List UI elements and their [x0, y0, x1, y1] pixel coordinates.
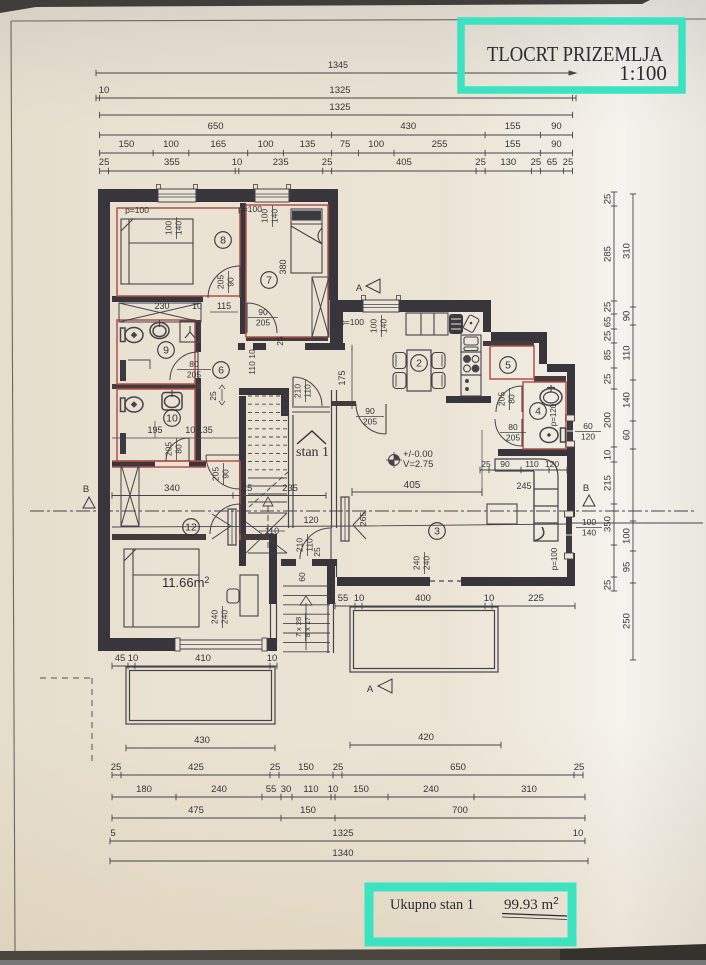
svg-text:1325: 1325 [329, 85, 350, 96]
svg-text:230: 230 [154, 301, 169, 311]
svg-text:30: 30 [281, 784, 292, 795]
svg-text:425: 425 [188, 762, 204, 773]
svg-text:150: 150 [118, 139, 134, 150]
svg-text:10: 10 [99, 85, 110, 96]
svg-text:60: 60 [297, 572, 307, 582]
svg-text:155: 155 [505, 139, 521, 150]
svg-text:240: 240 [210, 610, 220, 624]
svg-text:90: 90 [226, 277, 236, 287]
svg-text:100: 100 [582, 517, 596, 527]
svg-text:9: 9 [163, 345, 169, 357]
svg-text:1340: 1340 [332, 848, 353, 859]
svg-text:7: 7 [266, 275, 272, 287]
svg-text:100: 100 [258, 139, 274, 150]
svg-text:110: 110 [303, 384, 313, 398]
svg-text:p=100: p=100 [550, 547, 559, 570]
svg-text:285: 285 [603, 246, 614, 262]
svg-text:700: 700 [452, 805, 468, 816]
svg-text:5: 5 [505, 360, 511, 372]
svg-text:55: 55 [266, 784, 277, 795]
svg-text:100: 100 [163, 139, 179, 150]
svg-text:355: 355 [164, 157, 180, 168]
svg-text:205: 205 [363, 417, 377, 427]
svg-text:205: 205 [187, 370, 201, 380]
svg-text:A: A [367, 684, 374, 695]
svg-text:65: 65 [603, 317, 614, 328]
svg-text:1325: 1325 [332, 828, 353, 839]
svg-text:235: 235 [282, 483, 298, 494]
svg-text:25: 25 [99, 157, 110, 168]
svg-text:99.93 m2: 99.93 m2 [504, 896, 559, 913]
svg-text:210: 210 [295, 538, 305, 552]
svg-text:205: 205 [506, 433, 520, 443]
svg-text:25: 25 [333, 762, 344, 773]
svg-text:10: 10 [232, 157, 243, 168]
svg-text:25: 25 [603, 331, 614, 342]
svg-text:650: 650 [208, 121, 224, 132]
svg-text:25: 25 [242, 483, 253, 494]
svg-text:3: 3 [434, 526, 440, 538]
svg-text:90: 90 [365, 406, 375, 416]
svg-text:380: 380 [278, 259, 288, 274]
svg-text:Ukupno stan 1: Ukupno stan 1 [390, 897, 474, 913]
svg-text:340: 340 [164, 483, 180, 494]
svg-text:25: 25 [603, 302, 614, 313]
svg-text:stan 1: stan 1 [296, 445, 329, 460]
svg-text:85: 85 [603, 350, 614, 361]
svg-text:265: 265 [358, 512, 368, 526]
svg-text:155: 155 [505, 121, 521, 132]
svg-text:140: 140 [379, 319, 389, 333]
svg-text:10: 10 [603, 450, 614, 461]
svg-text:140: 140 [582, 528, 596, 538]
svg-text:240: 240 [220, 610, 230, 624]
svg-text:75: 75 [340, 139, 351, 150]
svg-text:100: 100 [260, 209, 270, 223]
svg-text:475: 475 [188, 805, 204, 816]
svg-text:90: 90 [258, 307, 268, 317]
svg-text:150: 150 [300, 805, 316, 816]
svg-text:10: 10 [328, 784, 339, 795]
svg-text:B: B [83, 484, 89, 495]
svg-text:95: 95 [622, 562, 633, 573]
svg-text:400: 400 [415, 593, 431, 604]
svg-text:90: 90 [622, 311, 633, 322]
svg-text:25: 25 [603, 374, 614, 385]
svg-text:310: 310 [622, 243, 633, 259]
svg-text:1345: 1345 [328, 60, 348, 70]
svg-text:405: 405 [396, 157, 412, 168]
svg-text:240: 240 [412, 556, 422, 570]
svg-text:225: 225 [528, 593, 544, 604]
svg-text:8 x 17: 8 x 17 [303, 617, 312, 637]
svg-text:80: 80 [174, 444, 184, 454]
svg-text:10: 10 [128, 653, 139, 664]
svg-text:25: 25 [475, 157, 486, 168]
svg-text:120: 120 [303, 515, 318, 525]
svg-text:60: 60 [583, 421, 593, 431]
svg-text:25: 25 [322, 157, 333, 168]
svg-text:5: 5 [110, 828, 115, 839]
svg-text:45: 45 [115, 653, 126, 664]
svg-text:210: 210 [293, 384, 303, 398]
svg-text:350: 350 [603, 516, 614, 532]
svg-text:180: 180 [136, 784, 152, 795]
svg-text:310: 310 [521, 784, 537, 795]
svg-text:140: 140 [174, 221, 184, 235]
svg-text:250: 250 [622, 613, 633, 629]
svg-text:25: 25 [574, 762, 585, 773]
svg-text:25: 25 [208, 391, 218, 401]
svg-text:10 135: 10 135 [185, 425, 213, 435]
svg-text:90: 90 [221, 469, 231, 479]
svg-text:25: 25 [312, 547, 322, 557]
svg-text:25: 25 [270, 762, 281, 773]
svg-text:650: 650 [450, 762, 466, 773]
svg-text:p=120: p=120 [549, 403, 558, 426]
svg-text:140: 140 [622, 392, 633, 408]
svg-text:25: 25 [275, 336, 285, 346]
svg-text:100: 100 [164, 221, 174, 235]
svg-text:420: 420 [418, 732, 434, 743]
svg-text:430: 430 [194, 735, 210, 746]
svg-text:100: 100 [369, 319, 379, 333]
svg-text:1:100: 1:100 [619, 61, 667, 85]
svg-text:10: 10 [573, 828, 584, 839]
svg-text:10: 10 [484, 593, 495, 604]
svg-text:110: 110 [525, 459, 539, 469]
svg-text:A: A [356, 283, 363, 294]
svg-text:10: 10 [354, 593, 365, 604]
svg-text:8: 8 [220, 235, 226, 247]
svg-text:140: 140 [270, 209, 280, 223]
svg-text:110 10: 110 10 [247, 349, 257, 375]
svg-text:110: 110 [622, 345, 633, 360]
svg-text:255: 255 [432, 139, 448, 150]
svg-text:B: B [583, 483, 589, 494]
svg-text:235: 235 [273, 157, 289, 168]
svg-text:120: 120 [581, 432, 595, 442]
svg-text:1325: 1325 [329, 102, 350, 113]
svg-text:6: 6 [218, 365, 224, 377]
svg-text:25: 25 [111, 762, 122, 773]
svg-text:205: 205 [216, 275, 226, 289]
svg-text:100: 100 [368, 139, 384, 150]
svg-text:65: 65 [547, 157, 558, 168]
svg-text:10: 10 [166, 413, 178, 425]
svg-text:205: 205 [497, 392, 507, 406]
svg-text:120: 120 [545, 459, 559, 469]
svg-text:25: 25 [563, 157, 574, 168]
svg-text:110: 110 [303, 784, 318, 795]
svg-text:205: 205 [256, 318, 270, 328]
svg-text:25: 25 [603, 194, 614, 205]
svg-text:12: 12 [185, 522, 197, 534]
svg-text:175: 175 [337, 370, 347, 385]
svg-text:p=100: p=100 [340, 317, 364, 327]
svg-text:25: 25 [531, 157, 542, 168]
svg-text:2: 2 [416, 358, 422, 370]
svg-text:10: 10 [267, 653, 278, 664]
svg-text:80: 80 [508, 422, 518, 432]
svg-text:25: 25 [481, 459, 491, 469]
svg-text:60: 60 [622, 430, 633, 441]
svg-text:205: 205 [164, 442, 174, 456]
svg-text:205: 205 [211, 467, 221, 481]
svg-text:p=100: p=100 [125, 205, 149, 215]
svg-text:430: 430 [400, 121, 416, 132]
svg-text:130: 130 [500, 157, 516, 168]
svg-text:90: 90 [551, 139, 562, 150]
svg-text:245: 245 [516, 481, 531, 491]
svg-text:4: 4 [535, 406, 541, 418]
svg-text:25: 25 [603, 580, 614, 591]
svg-text:7 x 28: 7 x 28 [294, 617, 303, 637]
svg-text:405: 405 [404, 480, 421, 491]
svg-text:80: 80 [507, 394, 517, 404]
svg-text:135: 135 [300, 139, 316, 150]
svg-text:165: 165 [210, 139, 226, 150]
svg-text:100: 100 [622, 528, 633, 544]
svg-text:55: 55 [338, 593, 349, 604]
svg-text:150: 150 [298, 762, 314, 773]
svg-text:410: 410 [195, 653, 211, 664]
svg-text:215: 215 [603, 475, 614, 491]
svg-text:V=2.75: V=2.75 [403, 459, 433, 470]
svg-text:150: 150 [353, 784, 369, 795]
svg-text:115: 115 [217, 301, 231, 311]
svg-text:240: 240 [422, 556, 432, 570]
svg-text:90: 90 [551, 121, 562, 132]
svg-text:80: 80 [189, 359, 199, 369]
svg-text:200: 200 [603, 412, 614, 428]
svg-text:240: 240 [423, 784, 439, 795]
svg-text:11.66m2: 11.66m2 [162, 575, 209, 590]
svg-text:240: 240 [211, 784, 227, 795]
svg-text:10: 10 [192, 301, 202, 311]
svg-text:90: 90 [500, 459, 510, 469]
